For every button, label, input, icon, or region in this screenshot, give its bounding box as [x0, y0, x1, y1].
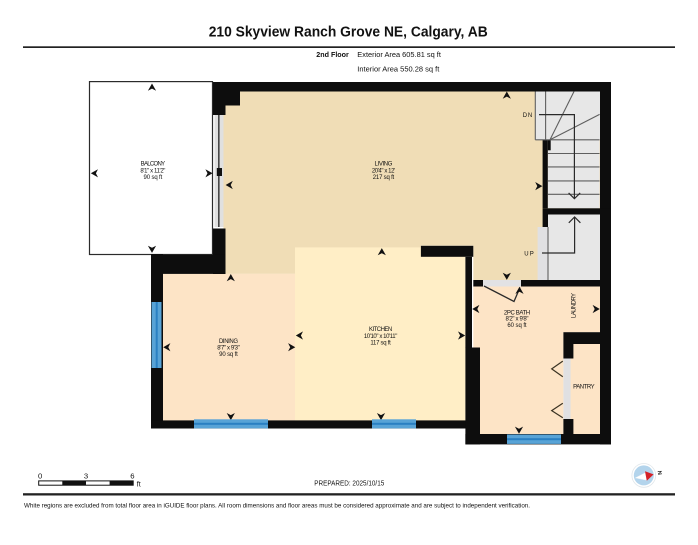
svg-text:20'4" x 12': 20'4" x 12'	[372, 168, 395, 174]
svg-text:3: 3	[84, 472, 88, 481]
svg-text:DN: DN	[523, 113, 533, 119]
svg-text:90 sq ft: 90 sq ft	[144, 175, 163, 181]
svg-text:60 sq ft: 60 sq ft	[507, 323, 527, 329]
svg-text:8'1" x 11'2": 8'1" x 11'2"	[140, 168, 165, 174]
svg-text:PANTRY: PANTRY	[573, 384, 595, 390]
svg-text:ft: ft	[137, 479, 141, 488]
svg-text:0: 0	[38, 472, 42, 481]
svg-text:LIVING: LIVING	[375, 162, 393, 168]
svg-text:2PC BATH: 2PC BATH	[504, 310, 530, 316]
svg-text:White regions are excluded fro: White regions are excluded from total fl…	[24, 502, 530, 509]
svg-text:Exterior Area 605.81 sq ft: Exterior Area 605.81 sq ft	[357, 50, 441, 59]
svg-text:2nd Floor: 2nd Floor	[316, 50, 349, 59]
svg-text:KITCHEN: KITCHEN	[369, 327, 392, 333]
svg-text:BALCONY: BALCONY	[141, 162, 166, 168]
svg-text:UP: UP	[524, 252, 534, 258]
svg-text:90 sq ft: 90 sq ft	[219, 352, 238, 358]
svg-text:117 sq ft: 117 sq ft	[370, 340, 391, 346]
svg-text:Interior Area 550.28 sq ft: Interior Area 550.28 sq ft	[357, 65, 440, 74]
svg-text:DINING: DINING	[219, 339, 238, 345]
svg-text:8'2" x 9'8": 8'2" x 9'8"	[506, 317, 529, 323]
svg-text:217 sq ft: 217 sq ft	[373, 175, 395, 181]
svg-text:8'7" x 9'3": 8'7" x 9'3"	[217, 346, 240, 352]
svg-text:N: N	[656, 470, 663, 475]
svg-text:210 Skyview Ranch Grove NE, Ca: 210 Skyview Ranch Grove NE, Calgary, AB	[209, 23, 488, 40]
svg-text:PREPARED: 2025/10/15: PREPARED: 2025/10/15	[314, 478, 384, 487]
svg-text:LAUNDRY: LAUNDRY	[572, 293, 578, 318]
svg-text:6: 6	[130, 472, 134, 481]
svg-text:10'10" x 10'11": 10'10" x 10'11"	[364, 334, 398, 340]
